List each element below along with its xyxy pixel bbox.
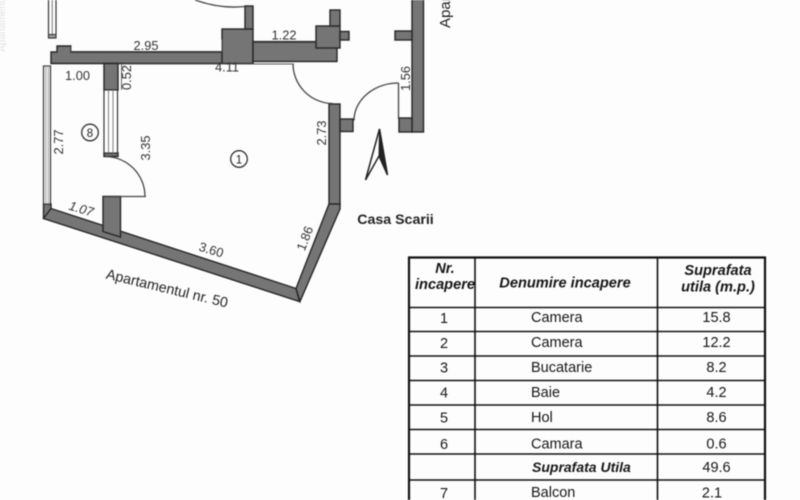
- svg-text:Denumire incapere: Denumire incapere: [499, 276, 630, 292]
- svg-text:2.77: 2.77: [51, 130, 66, 155]
- svg-text:2.95: 2.95: [134, 38, 159, 53]
- svg-text:2.1: 2.1: [702, 486, 722, 500]
- svg-text:Camara: Camara: [531, 437, 584, 453]
- svg-text:8.2: 8.2: [706, 360, 726, 376]
- svg-text:12.2: 12.2: [702, 335, 730, 351]
- svg-text:incapere: incapere: [415, 277, 475, 293]
- svg-text:1: 1: [440, 311, 448, 327]
- svg-text:1.56: 1.56: [398, 66, 413, 91]
- svg-text:Apartamentul nr. 48: Apartamentul nr. 48: [437, 0, 454, 28]
- svg-text:Hol: Hol: [531, 410, 553, 426]
- svg-text:Suprafata: Suprafata: [684, 263, 751, 279]
- svg-text:Camera: Camera: [531, 335, 584, 351]
- svg-text:Bucatarie: Bucatarie: [531, 360, 592, 376]
- svg-text:utila (m.p.): utila (m.p.): [681, 280, 755, 296]
- svg-text:1.00: 1.00: [65, 68, 90, 83]
- svg-text:Suprafata Utila: Suprafata Utila: [532, 459, 631, 475]
- svg-text:3: 3: [440, 361, 448, 377]
- svg-text:8: 8: [87, 128, 93, 140]
- svg-text:Nr.: Nr.: [435, 261, 454, 277]
- svg-text:Apartamentul: Apartamentul: [0, 0, 8, 52]
- svg-text:3.35: 3.35: [138, 136, 153, 161]
- svg-text:6: 6: [440, 437, 448, 453]
- svg-text:15.8: 15.8: [702, 310, 730, 326]
- svg-text:49.6: 49.6: [702, 460, 730, 476]
- svg-text:Baie: Baie: [531, 385, 560, 401]
- svg-text:4: 4: [440, 386, 448, 402]
- svg-text:1.22: 1.22: [272, 28, 297, 43]
- svg-text:2: 2: [440, 336, 448, 352]
- svg-text:1: 1: [236, 155, 242, 167]
- svg-text:2.73: 2.73: [314, 121, 329, 146]
- svg-text:Casa Scarii: Casa Scarii: [357, 212, 434, 228]
- svg-text:Balcon: Balcon: [531, 485, 575, 500]
- svg-text:0.52: 0.52: [119, 65, 134, 90]
- svg-text:7: 7: [440, 486, 448, 500]
- svg-text:8.6: 8.6: [706, 410, 726, 426]
- svg-text:5: 5: [440, 411, 448, 427]
- svg-text:4.2: 4.2: [706, 385, 726, 401]
- svg-text:Camera: Camera: [531, 310, 584, 326]
- svg-text:4.11: 4.11: [215, 60, 239, 75]
- svg-text:0.6: 0.6: [706, 437, 726, 453]
